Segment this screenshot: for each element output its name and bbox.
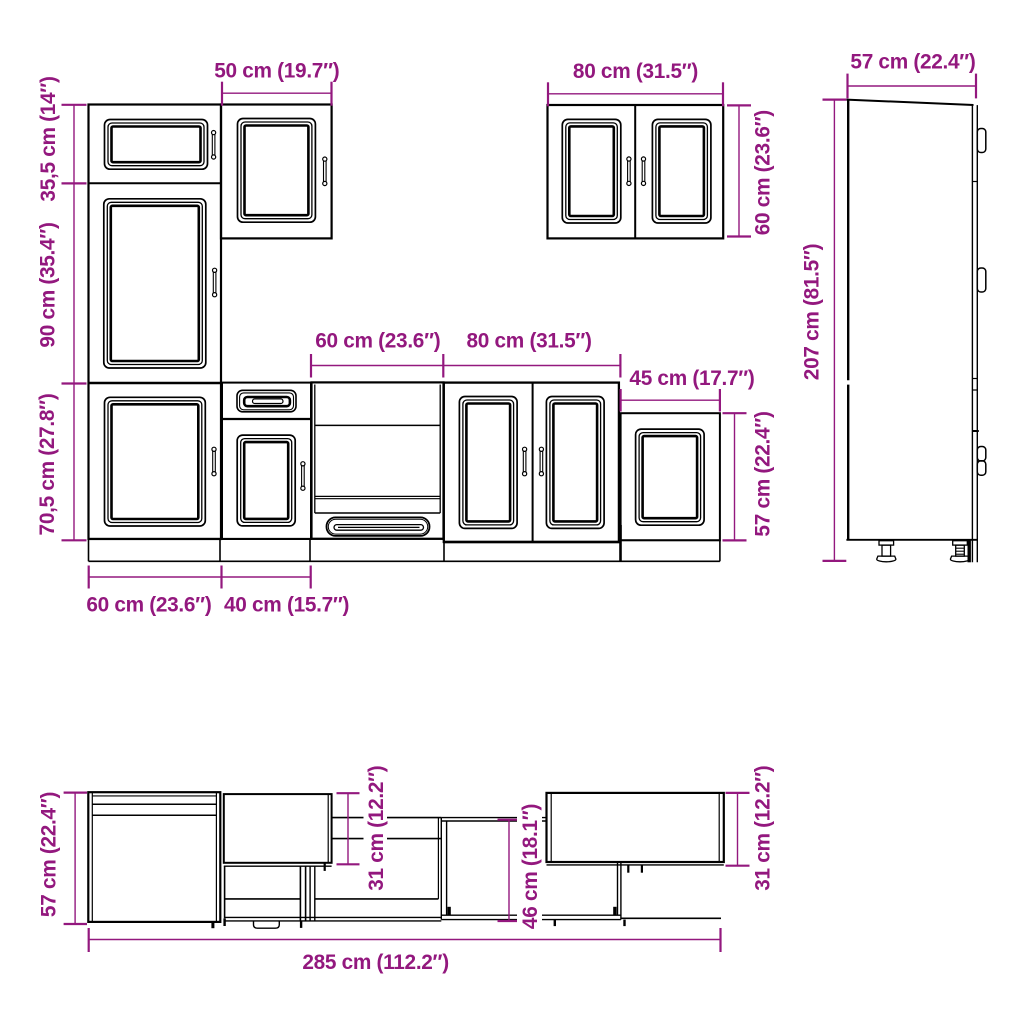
svg-text:90 cm (35.4″): 90 cm (35.4″) — [37, 222, 60, 347]
svg-text:285 cm (112.2″): 285 cm (112.2″) — [302, 951, 449, 974]
svg-text:35,5 cm (14″): 35,5 cm (14″) — [37, 76, 60, 201]
svg-text:60 cm (23.6″): 60 cm (23.6″) — [752, 110, 775, 235]
svg-text:60 cm (23.6″): 60 cm (23.6″) — [86, 594, 211, 617]
svg-text:46 cm (18.1″): 46 cm (18.1″) — [519, 804, 542, 929]
svg-text:80 cm (31.5″): 80 cm (31.5″) — [573, 60, 698, 83]
svg-text:40 cm (15.7″): 40 cm (15.7″) — [224, 594, 349, 617]
svg-text:80 cm (31.5″): 80 cm (31.5″) — [467, 330, 592, 353]
svg-text:31 cm (12.2″): 31 cm (12.2″) — [365, 766, 388, 891]
svg-text:57 cm (22.4″): 57 cm (22.4″) — [37, 792, 60, 917]
svg-text:45 cm (17.7″): 45 cm (17.7″) — [629, 367, 754, 390]
svg-text:207 cm (81.5″): 207 cm (81.5″) — [801, 244, 824, 380]
svg-text:70,5 cm (27.8″): 70,5 cm (27.8″) — [36, 394, 59, 536]
svg-text:60 cm (23.6″): 60 cm (23.6″) — [315, 330, 440, 353]
svg-text:57 cm (22.4″): 57 cm (22.4″) — [752, 411, 775, 536]
svg-text:31 cm (12.2″): 31 cm (12.2″) — [752, 766, 775, 891]
svg-text:50 cm (19.7″): 50 cm (19.7″) — [214, 60, 339, 83]
svg-text:57 cm (22.4″): 57 cm (22.4″) — [850, 51, 975, 74]
